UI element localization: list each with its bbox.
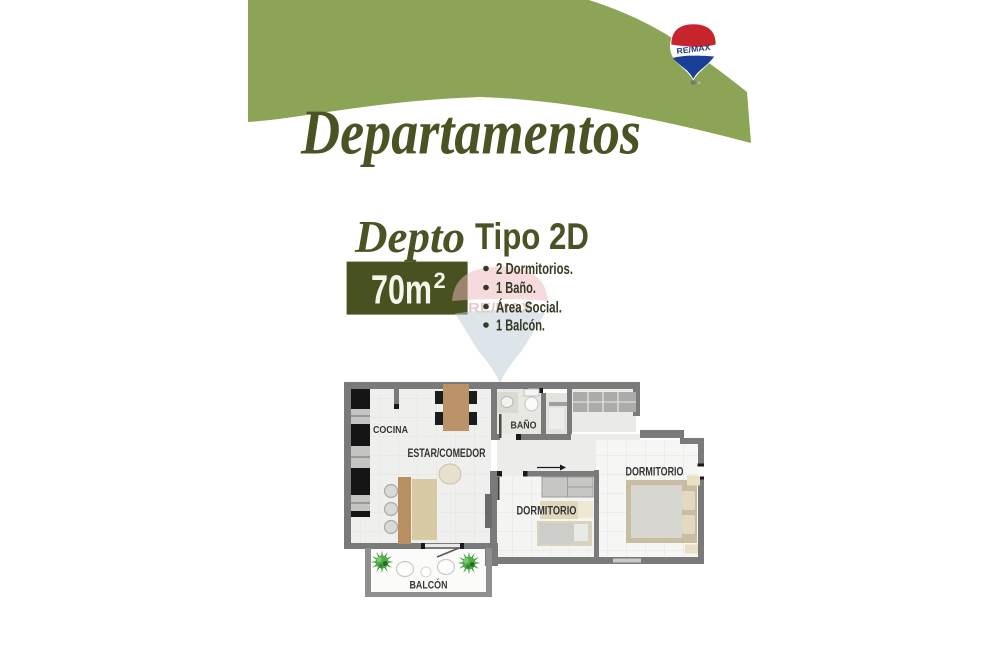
svg-text:Depto: Depto [354, 211, 465, 262]
svg-text:Departamentos: Departamentos [300, 97, 641, 168]
svg-text:BAÑO: BAÑO [511, 419, 537, 432]
svg-text:Tipo 2D: Tipo 2D [475, 216, 589, 257]
svg-text:BALCÓN: BALCÓN [410, 579, 448, 592]
svg-text:COCINA: COCINA [373, 424, 408, 436]
svg-text:Área Social.: Área Social. [496, 299, 562, 316]
svg-text:DORMITORIO: DORMITORIO [517, 504, 577, 518]
svg-text:1 Balcón.: 1 Balcón. [496, 318, 545, 335]
svg-text:2 Dormitorios.: 2 Dormitorios. [496, 261, 573, 278]
svg-text:ESTAR/COMEDOR: ESTAR/COMEDOR [408, 446, 486, 460]
svg-text:1 Baño.: 1 Baño. [496, 280, 536, 297]
svg-text:DORMITORIO: DORMITORIO [626, 465, 684, 479]
svg-text:70m: 70m [371, 267, 432, 313]
svg-text:2: 2 [434, 268, 446, 293]
